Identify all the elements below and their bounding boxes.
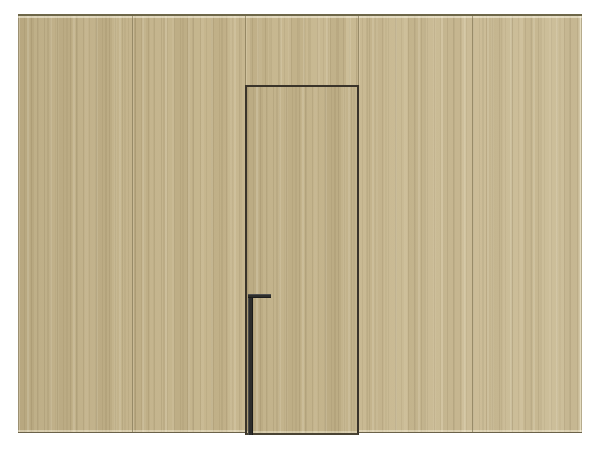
- panel-seam: [132, 16, 133, 432]
- door-handle-vertical-grip: [248, 294, 253, 435]
- panel-seam: [472, 16, 473, 432]
- door-jamb-seam: [245, 16, 246, 85]
- concealed-door: [245, 85, 359, 435]
- render-canvas: [0, 0, 600, 450]
- door-handle-horizontal-arm: [248, 294, 271, 298]
- door-jamb-seam: [358, 16, 359, 85]
